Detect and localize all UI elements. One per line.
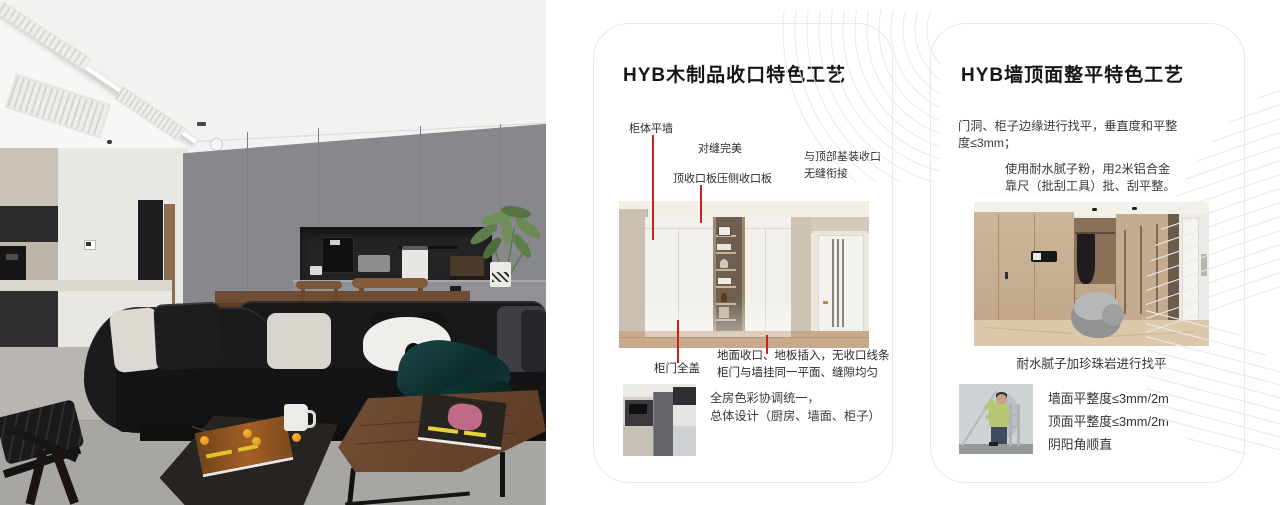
gray-wall-seam [247, 132, 248, 292]
gray-wall-seam [420, 126, 421, 228]
thumb-kitchen-lower [673, 426, 696, 456]
render-shelf [716, 252, 736, 254]
leveling-paragraph: 门洞、柜子边缘进行找平，垂直度和平整 [958, 118, 1177, 135]
hall-white-door-leaf [1182, 218, 1199, 326]
worker-thumbnail [959, 384, 1033, 454]
note-floor-join: 地面收口、地板插入，无收口线条 [717, 347, 890, 363]
hall-switch-display [1033, 253, 1041, 260]
render-door-handle [823, 301, 828, 304]
callout-top-join: 无缝衔接 [804, 165, 848, 181]
cushion-black-leather [153, 301, 222, 370]
coffee-machine-screen [330, 240, 340, 245]
render-shelf [716, 286, 736, 288]
espresso-maker-metal [358, 255, 390, 272]
callout-cabinet-flush-wall: 柜体平墙 [629, 120, 673, 136]
kitchen-counter [0, 280, 172, 291]
ceiling-vent-small [197, 122, 206, 126]
orange-fruit [252, 437, 261, 446]
ladder-rung [1009, 426, 1019, 428]
card-wood-craft: HYB木制品收口特色工艺 柜体平墙 对缝完美 顶收口板压侧收口板 与顶部基装收口… [593, 23, 893, 483]
wardrobe-render-photo [619, 201, 869, 348]
ladder-rail [1017, 404, 1020, 446]
putty-paragraph: 使用耐水腻子粉，用2米铝合金 [1005, 161, 1170, 178]
cushion-white [267, 313, 331, 369]
interior-thumbnail [623, 384, 696, 456]
hall-door-handle [1005, 272, 1008, 279]
leader-line [766, 335, 768, 354]
render-reflection [645, 299, 791, 337]
render-door-stripe [842, 239, 844, 327]
spec-wall-flatness: 墙面平整度≤3mm/2m [1048, 388, 1169, 407]
thumb-gray-cabinet [653, 392, 674, 456]
callout-perfect-seam: 对缝完美 [698, 140, 742, 156]
hall-panel-groove [1140, 226, 1142, 314]
thermostat-screen [86, 242, 91, 246]
hall-doorway-shadow [1168, 214, 1179, 328]
callout-top-panel: 顶收口板压侧收口板 [673, 170, 772, 186]
putty-paragraph: 靠尺（批刮工具）批、刮平整。 [1005, 178, 1176, 195]
lounge-chair [0, 400, 96, 505]
downlight-dot [107, 140, 112, 144]
spec-corner-straightness: 阴阳角顺直 [1048, 434, 1112, 453]
render-decor-item [718, 226, 731, 236]
thumb-kitchen-counter [673, 405, 696, 426]
kitchen-upper-cabinets [0, 148, 58, 207]
kitchen-lower-cabinets [0, 291, 58, 347]
walnut-table-leg [500, 452, 505, 497]
hall-downlight [1092, 208, 1097, 211]
render-right-wall [791, 217, 811, 337]
card-wood-title: HYB木制品收口特色工艺 [623, 60, 846, 87]
summary-text: 全房色彩协调统一， [710, 390, 820, 407]
card-wall-title: HYB墙顶面整平特色工艺 [961, 60, 1184, 87]
summary-text: 总体设计（厨房、墙面、柜子） [710, 408, 881, 425]
render-door-stripe [832, 239, 834, 327]
gray-wall-seam [318, 128, 319, 228]
card-wall-craft: HYB墙顶面整平特色工艺 门洞、柜子边缘进行找平，垂直度和平整 度≤3mm； 使… [930, 23, 1245, 483]
hall-mirror-glimpse [1201, 254, 1207, 276]
coffee-tower-screen [6, 254, 18, 260]
hall-downlight [1132, 207, 1137, 210]
white-mug-handle [305, 410, 316, 428]
render-decor-item [717, 244, 731, 250]
dining-chair-post [418, 288, 423, 301]
render-decor-item [720, 259, 728, 268]
callout-top-join: 与顶部基装收口 [804, 148, 881, 164]
leader-line [677, 320, 679, 363]
render-door-stripe [837, 239, 839, 327]
ladder-rail [1009, 404, 1012, 446]
render-decor-item [718, 278, 731, 284]
leader-line [652, 135, 654, 240]
orange-fruit [243, 429, 252, 438]
hall-door-seam [1034, 214, 1035, 326]
coffee-machine-white [402, 246, 428, 280]
spec-ceiling-flatness: 顶面平整度≤3mm/2m [1048, 411, 1169, 430]
kitchen-niche [0, 206, 58, 242]
hall-left-wood-wall [974, 212, 1074, 326]
leveling-paragraph: 度≤3mm； [958, 135, 1016, 152]
hall-door-seam [998, 214, 999, 326]
living-room-photo [0, 0, 546, 505]
worker-shoe [989, 442, 998, 446]
smoke-detector [210, 138, 223, 151]
hall-hanging-clothes [1077, 234, 1095, 284]
dining-chair-back [352, 278, 428, 288]
render-shelf [716, 269, 736, 271]
leader-line [700, 185, 702, 223]
orange-fruit [292, 433, 301, 442]
render-floor-seam [619, 337, 869, 338]
orange-fruit [200, 436, 209, 445]
ladder-rung [1009, 414, 1019, 416]
brochure-page: { "colors": { "accent_red": "#c8231c", "… [0, 0, 1280, 505]
round-pouf [1102, 304, 1124, 326]
plant-vase-pattern [492, 272, 509, 282]
dining-chair-back [296, 281, 342, 289]
wood-panel-photo [974, 202, 1209, 346]
thumb-kitchen-upper [673, 387, 696, 405]
cushion-dark [521, 310, 546, 372]
note-floor-join: 柜门与墙挂同一平面、缝隙均匀 [717, 364, 878, 380]
thumb-floor [623, 426, 653, 456]
render-left-wall [619, 209, 648, 348]
render-interior-door [818, 235, 864, 333]
niche-cup [310, 266, 322, 275]
thumb-tv [629, 404, 647, 414]
hall-panel-groove [1156, 224, 1158, 314]
photo-caption: 耐水腻子加珍珠岩进行找平 [974, 356, 1209, 373]
hall-panel-groove [1124, 230, 1126, 314]
